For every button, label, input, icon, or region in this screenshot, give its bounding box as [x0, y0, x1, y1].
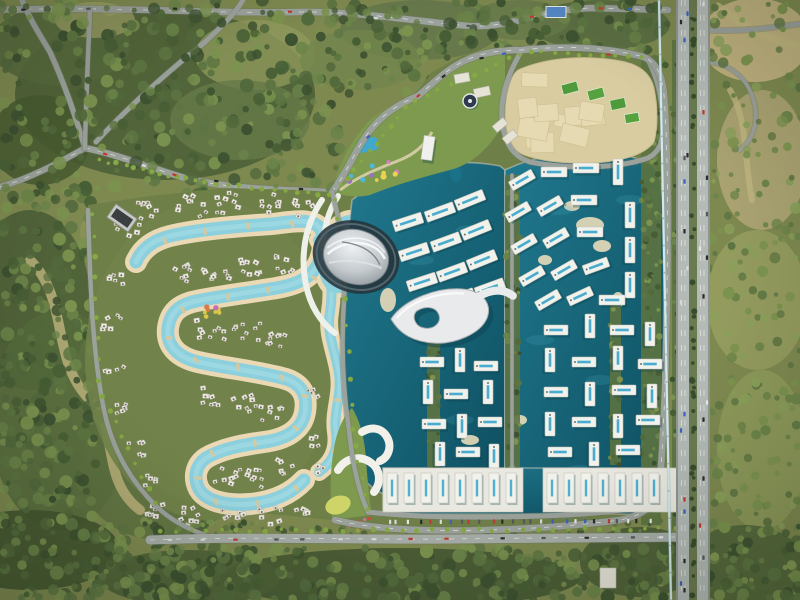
aerial-masterplan-render [0, 0, 800, 600]
vignette-overlay [0, 0, 800, 600]
masterplan-scene [0, 0, 800, 600]
